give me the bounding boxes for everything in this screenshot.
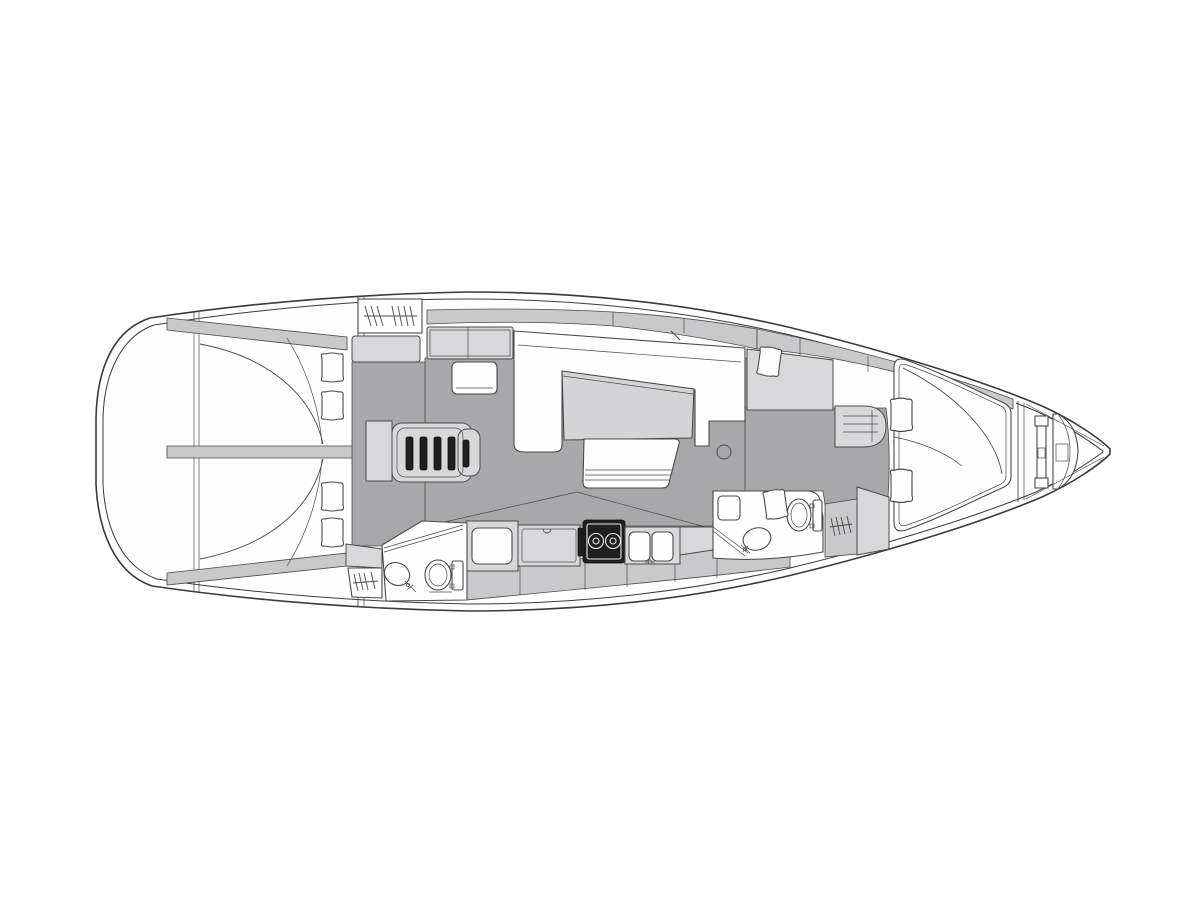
forward-toilet-bowl	[787, 499, 811, 531]
shelf-storage-box-bottom	[763, 488, 789, 520]
mast-support-post	[717, 445, 731, 459]
shelf-storage-box-top	[756, 346, 782, 378]
vanity-seat	[835, 406, 886, 447]
step-slat-3	[434, 437, 441, 470]
aft-toilet-icon	[425, 560, 463, 592]
sink-right	[652, 532, 673, 561]
chain-locker-cap-bottom	[1035, 478, 1048, 488]
step-slat-2	[420, 437, 427, 470]
aft-starboard-pillow-2	[321, 518, 343, 547]
engine-box	[366, 421, 392, 481]
chart-table	[427, 327, 513, 359]
forward-side-cabinet	[857, 487, 889, 555]
stove	[578, 520, 628, 563]
aft-cabin-divider-wall	[167, 446, 360, 458]
forward-head-door	[718, 496, 740, 520]
forward-toilet-icon	[787, 499, 822, 531]
aft-starboard-pillow-1	[321, 482, 343, 511]
yacht-layout-diagram	[0, 0, 1200, 899]
forward-head	[713, 487, 889, 559]
sink-left	[629, 532, 650, 561]
aft-port-pillow-2	[321, 391, 343, 420]
stove-gimbal-left	[578, 528, 584, 556]
galley-locker	[518, 525, 580, 566]
fridge-top-lid	[472, 528, 512, 564]
navigator-seat	[452, 362, 497, 394]
forward-pillow-2	[890, 469, 912, 502]
step-slat-4	[448, 437, 455, 470]
forward-hanging-locker	[825, 499, 857, 557]
boat-floor-plan-canvas	[0, 0, 1200, 899]
companionway-cabinet	[352, 336, 420, 362]
forward-pillow-1	[890, 398, 912, 431]
galley-counter-right	[680, 527, 713, 555]
step-slat-1	[406, 437, 413, 470]
salon-bench-seat	[583, 439, 679, 488]
step-slat-5	[463, 440, 469, 467]
aft-port-pillow-1	[321, 353, 343, 382]
chain-locker-cap-top	[1035, 416, 1048, 426]
